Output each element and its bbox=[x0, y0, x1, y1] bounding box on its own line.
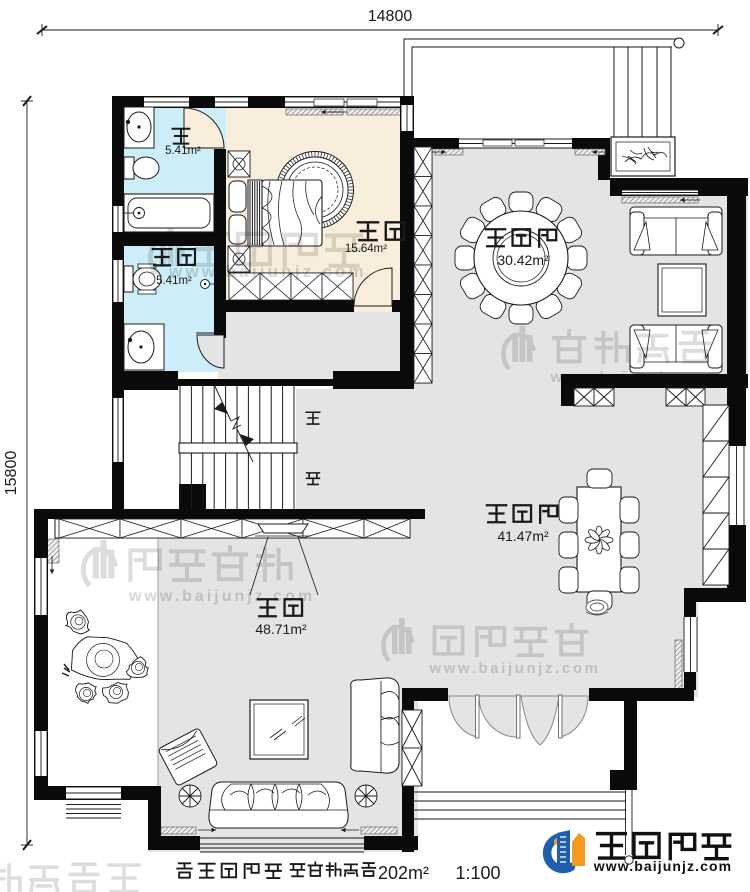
svg-text:www.baijunjz.com: www.baijunjz.com bbox=[549, 369, 721, 386]
svg-text:www.baijunjz.com: www.baijunjz.com bbox=[128, 588, 315, 605]
svg-text:48.71m²: 48.71m² bbox=[255, 621, 307, 637]
svg-text:30.42m²: 30.42m² bbox=[497, 252, 549, 268]
svg-text:www.baijunjz.com: www.baijunjz.com bbox=[428, 660, 600, 677]
svg-text:5.41m²: 5.41m² bbox=[165, 145, 201, 157]
svg-text:www.baijunjz.com: www.baijunjz.com bbox=[168, 262, 367, 281]
svg-text:1:100: 1:100 bbox=[455, 863, 500, 883]
svg-text:14800: 14800 bbox=[368, 8, 413, 25]
svg-text:www.baijunjz.com: www.baijunjz.com bbox=[593, 858, 732, 874]
svg-text:15800: 15800 bbox=[3, 451, 20, 496]
svg-text:41.47m²: 41.47m² bbox=[497, 528, 549, 544]
svg-text:202m²: 202m² bbox=[378, 863, 429, 883]
